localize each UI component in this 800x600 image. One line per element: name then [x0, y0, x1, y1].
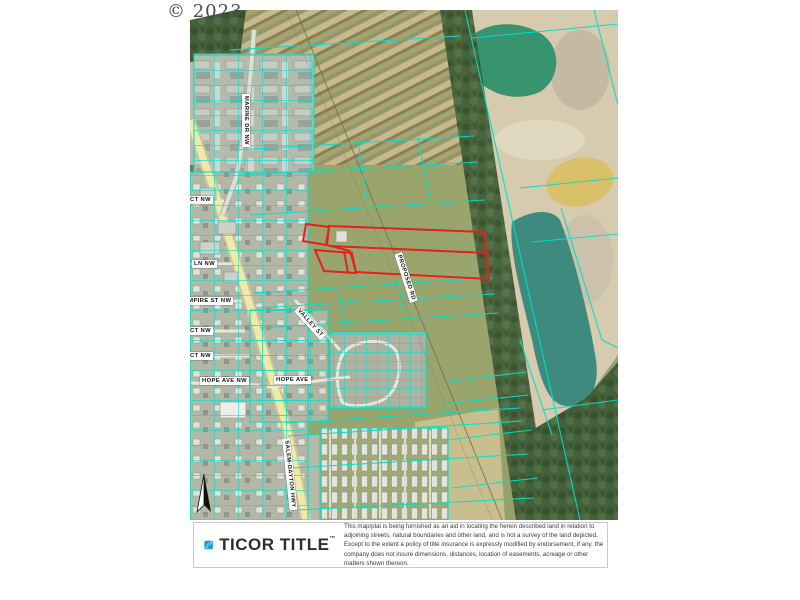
plat-map-page: © 2023 — [0, 0, 800, 600]
street-label-hope-ave: HOPE AVE — [274, 376, 311, 384]
street-label-empire-st: EMPIRE ST NW — [190, 297, 233, 305]
street-label-ct-nw-lower: CT NW — [190, 352, 213, 360]
disclaimer-text: This map/plat is being furnished as an a… — [344, 522, 607, 568]
ticor-title-logo: TICOR TITLE™ — [204, 530, 336, 560]
trademark-symbol: ™ — [330, 536, 337, 542]
footer-bar: TICOR TITLE™ This map/plat is being furn… — [193, 522, 608, 568]
street-label-marine-dr: MARINE DR NW — [242, 94, 250, 147]
brand-name: TICOR TITLE™ — [219, 535, 336, 555]
copyright-text: © 2023 — [167, 1, 243, 22]
street-label-ct-nw-upper: CT NW — [190, 196, 213, 204]
ticor-logo-icon — [204, 530, 213, 560]
aerial-map-image: MARINE DR NW CT NW LN NW EMPIRE ST NW CT… — [190, 10, 618, 520]
street-label-ct-nw-mid: CT NW — [190, 327, 213, 335]
brand-name-text: TICOR TITLE — [219, 535, 329, 554]
street-label-hope-ave-nw: HOPE AVE NW — [200, 377, 249, 385]
street-label-ln-nw: LN NW — [192, 260, 217, 268]
